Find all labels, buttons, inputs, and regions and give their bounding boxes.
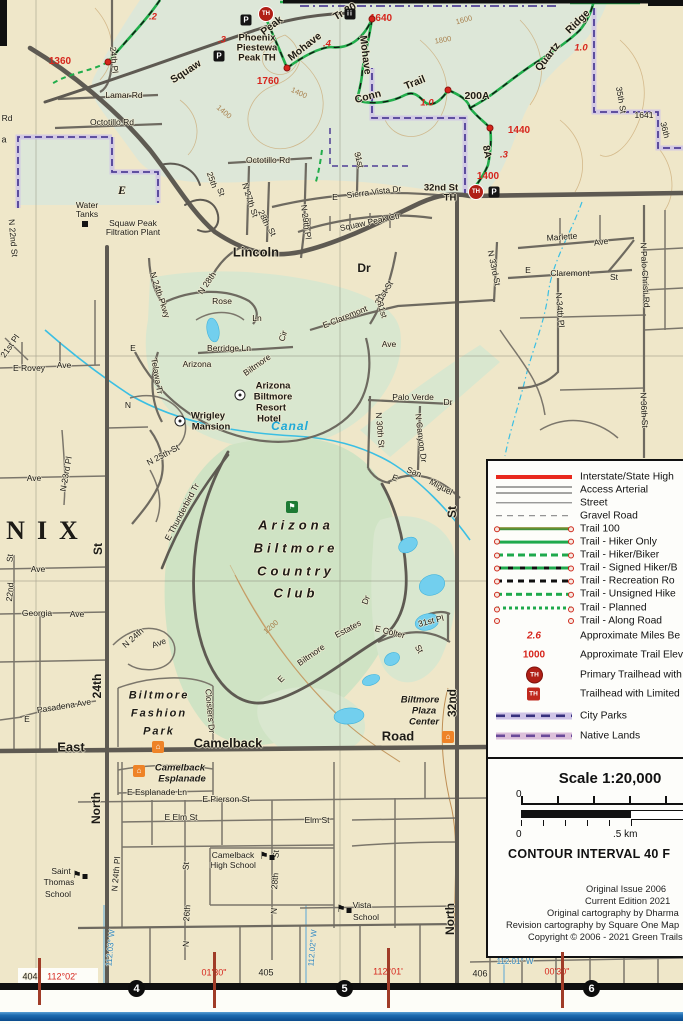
legend-item-label: Trail - Hiker Only — [580, 537, 657, 548]
scale-bar-mi — [521, 803, 683, 805]
map-label: a — [1, 136, 6, 145]
map-label: Biltmore — [254, 542, 339, 555]
trail100-line-sample — [496, 527, 572, 531]
map-label: Biltmore — [254, 392, 293, 402]
fashion-park-label: Biltmore — [129, 691, 190, 702]
map-label: Rd — [2, 114, 13, 123]
map-label: 1600 — [455, 14, 473, 26]
arterial-line-sample — [496, 486, 572, 493]
map-label: St — [413, 643, 424, 654]
legend-item-label: Street — [580, 497, 607, 508]
mansion-poi-icon — [175, 416, 186, 427]
map-label: N 22nd St — [7, 219, 19, 257]
scale-km-zero: 0 — [516, 829, 522, 840]
map-label: Ave — [70, 610, 85, 619]
legend-box: Interstate/State HighAccess ArterialStre… — [486, 459, 683, 759]
street-line-sample — [496, 502, 572, 503]
city-parks-sample — [496, 712, 572, 719]
legend-item-alongroad: Trail - Along Road — [488, 614, 683, 627]
map-label: Telawa Tr — [150, 357, 165, 394]
trail-marker-dot — [105, 59, 112, 66]
grid-tile-5: 5 — [336, 980, 353, 997]
map-label: E Colter — [374, 624, 406, 640]
map-label: Country — [257, 565, 335, 578]
map-label: N — [181, 941, 190, 948]
map-label: St — [610, 273, 618, 282]
map-label: 25th — [205, 171, 219, 189]
map-label: St — [446, 506, 458, 518]
map-label: San — [405, 465, 422, 479]
map-label: Ave — [382, 340, 397, 349]
scale-title: Scale 1:20,000 — [488, 770, 683, 787]
map-label: N Canyon Dr — [414, 413, 428, 463]
lincoln-dr-label: Lincoln — [233, 246, 279, 259]
map-label: Ave — [151, 637, 168, 650]
map-label: Dr — [357, 262, 370, 274]
restroom-icon: ii — [345, 9, 356, 20]
map-label: 1641 — [635, 111, 654, 120]
map-label: E — [276, 674, 286, 684]
map-label: Peak TH — [238, 53, 276, 63]
parking-icon: P — [241, 15, 252, 26]
water-tank-icon — [82, 221, 88, 227]
map-label: Squaw Peak Ctr — [339, 211, 401, 232]
map-label: North — [90, 792, 102, 824]
24th-st-label: 24th — [91, 674, 103, 699]
map-label: Center — [409, 717, 439, 727]
map-label: Cir — [277, 330, 288, 343]
map-label: Club — [274, 587, 319, 600]
map-label: Ave — [593, 237, 609, 247]
legend-item-hiker: Trail - Hiker Only — [488, 536, 683, 549]
legend-item-signed: Trail - Signed Hiker/B — [488, 562, 683, 575]
map-label: Octotillo Rd — [90, 118, 134, 127]
map-label: Camelback — [194, 737, 263, 750]
map-label: 1400 — [290, 86, 308, 100]
camelback-rd-label: East — [57, 741, 84, 754]
school-icon: ⚑ — [260, 852, 275, 862]
legend-item-planned: Trail - Planned — [488, 601, 683, 614]
map-label: 26th — [182, 904, 192, 921]
map-label: 1200 — [262, 619, 280, 635]
map-label: Esplanade — [158, 774, 206, 784]
credit-line: Original Issue 2006 — [586, 884, 666, 894]
school-icon: ⚑ — [73, 871, 88, 881]
map-label: N Palo Christi Rd — [639, 242, 651, 308]
scale-bar-km-outline — [631, 810, 683, 820]
grid-tile-4: 4 — [128, 980, 145, 997]
shopping-icon: ⌂ — [133, 765, 145, 777]
school-icon: ⚑ — [337, 905, 352, 915]
graticule-tick — [561, 952, 564, 1008]
map-label: N — [269, 908, 278, 915]
map-label: 112.01° W — [497, 958, 534, 966]
map-label: Park — [143, 727, 175, 738]
legend-th-primary-label: Primary Trailhead with — [580, 669, 682, 680]
map-label: Ln — [252, 314, 261, 323]
map-label: 406 — [472, 970, 487, 979]
map-label: Palo Verde — [392, 393, 434, 402]
map-label: E — [118, 184, 126, 196]
map-label: St — [5, 554, 14, 563]
canal-label: Canal — [271, 420, 309, 432]
trailhead-icon: TH — [258, 6, 274, 22]
trail-marker-dot — [284, 65, 291, 72]
parking-icon: P — [489, 187, 500, 198]
legend-item-label: Trail - Planned — [580, 602, 647, 613]
legend-item-street: Street — [488, 496, 683, 509]
legend-city-parks: City Parks — [488, 709, 683, 722]
map-label: .3 — [218, 35, 226, 45]
map-label: Tanks — [76, 210, 98, 219]
trail-8a-label: 8A — [480, 145, 492, 159]
map-label: School — [353, 913, 379, 922]
map-label: North — [444, 903, 456, 935]
map-label: N — [125, 401, 131, 410]
map-label: Elm St — [304, 816, 329, 825]
saint-thomas-school-label: Saint — [51, 867, 70, 876]
credit-line: Revision cartography by Square One Map — [506, 920, 679, 930]
map-label: Estates — [333, 619, 362, 640]
native-lands-sample — [496, 732, 572, 739]
map-label: Mohave — [357, 35, 372, 75]
elevation-1760: 1760 — [257, 77, 279, 87]
map-label: 1800 — [434, 35, 452, 45]
map-label: E — [391, 473, 399, 483]
legend-elevation-value: 1000 — [496, 649, 572, 660]
elevation-1360: 1360 — [49, 57, 71, 67]
map-label: E Claremont — [322, 304, 369, 330]
legend-city-parks-label: City Parks — [580, 710, 627, 721]
map-label: Ave — [27, 474, 42, 483]
legend-item-label: Trail - Hiker/Biker — [580, 550, 659, 561]
elevation-1400: 1400 — [477, 172, 499, 182]
map-label: Miguel — [428, 477, 454, 496]
map-label: Pasadena Ave — [36, 698, 91, 715]
camelback-high-school-label: Camelback — [212, 851, 255, 860]
map-label: Octotillo Rd — [246, 156, 290, 165]
grid-tile-6: 6 — [583, 980, 600, 997]
legend-th-limited-label: Trailhead with Limited — [580, 688, 680, 699]
shopping-icon: ⌂ — [152, 741, 164, 753]
camelback-esplanade-label: Camelback — [155, 763, 205, 773]
legend-item-label: Trail 100 — [580, 523, 620, 534]
map-label: Cloisters Dr — [204, 689, 216, 734]
map-label: N 36th St — [639, 392, 649, 428]
map-label: E — [332, 193, 338, 202]
trail-marker-dot — [487, 125, 494, 132]
map-label: 405 — [258, 969, 273, 978]
map-label: Fashion — [131, 709, 187, 720]
map-label: N 33rd St — [486, 250, 502, 287]
map-label: Ridge — [564, 8, 592, 36]
trailhead-icon: TH — [468, 184, 484, 200]
trail-marker-dot — [369, 16, 376, 23]
map-label: E — [24, 715, 30, 724]
map-label: N 28th — [196, 270, 217, 295]
legend-item-label: Trail - Unsigned Hike — [580, 589, 676, 600]
map-label: Lamar Rd — [105, 91, 142, 100]
map-label: 31st Pl — [417, 614, 444, 629]
credit-line: Current Edition 2021 — [585, 896, 670, 906]
map-label: Claremont — [550, 269, 589, 278]
map-label: Trail — [403, 74, 427, 92]
map-label: E Elm St — [164, 813, 197, 822]
map-label: N 29th Pl — [299, 204, 312, 240]
map-label: 21st Pl — [0, 333, 21, 359]
map-label: Resort — [256, 403, 286, 413]
golf-course-icon: ⚑ — [286, 501, 298, 513]
mohave-trail-label: Mohave — [286, 31, 323, 63]
map-label: N 24th Pkwy — [149, 271, 172, 319]
map-label: Biltmore — [242, 353, 272, 378]
recreation-line-sample — [496, 580, 572, 583]
map-label: Plaza — [412, 706, 436, 716]
legend-item-hwy: Interstate/State High — [488, 470, 683, 483]
parking-icon: P — [214, 51, 225, 62]
legend-item-label: Gravel Road — [580, 510, 638, 521]
vista-school-label: Vista — [353, 901, 372, 910]
map-label: N 34th Pl — [554, 292, 566, 328]
th-circle-icon: TH — [526, 666, 543, 683]
map-label: St — [92, 543, 104, 555]
scale-box: Scale 1:20,000 0 0 .5 km CONTOUR INTERVA… — [486, 757, 683, 958]
map-label: E — [525, 266, 531, 275]
scale-km-label: .5 km — [613, 829, 637, 840]
unsigned-line-sample — [496, 593, 572, 595]
map-label: .2 — [149, 12, 157, 22]
legend-item-label: Trail - Along Road — [580, 615, 662, 626]
map-label: N 24th Pl — [110, 856, 122, 892]
map-label: Ave — [31, 565, 46, 574]
map-label: 1400 — [215, 104, 233, 120]
map-label: St — [216, 187, 227, 197]
map-label: 22nd — [5, 582, 15, 602]
legend-native-lands-label: Native Lands — [580, 730, 640, 741]
map-label: E Rovey — [13, 364, 45, 373]
legend-item-label: Interstate/State High — [580, 471, 674, 482]
shopping-icon: ⌂ — [442, 731, 454, 743]
graticule-tick — [387, 948, 390, 1008]
hikerbiker-line-sample — [496, 554, 572, 557]
trail-marker-dot — [445, 87, 452, 94]
quartz-ridge-label: Quartz — [534, 41, 563, 74]
gravel-line-sample — [496, 515, 572, 517]
legend-item-arterial: Access Arterial — [488, 483, 683, 496]
biltmore-hotel-label: Arizona — [256, 381, 291, 391]
map-label: Rose — [212, 297, 232, 306]
wrigley-mansion-label: Wrigley — [191, 411, 225, 421]
map-label: Sierra Vista Dr — [346, 184, 402, 199]
map-label: 36th — [659, 121, 671, 139]
map-label: 31st — [353, 151, 365, 169]
map-label: E Thunderbird Tr — [163, 482, 200, 542]
map-label: 35th St — [614, 86, 627, 114]
legend-item-hikerbiker: Trail - Hiker/Biker — [488, 549, 683, 562]
legend-elevation-label: Approximate Trail Elev — [580, 649, 683, 660]
map-label: Dr — [444, 398, 453, 407]
map-label: 00'30" — [545, 968, 570, 977]
legend-elevation: 1000 Approximate Trail Elev — [488, 648, 683, 661]
map-label: N 24th — [121, 626, 145, 649]
map-label: Ave — [57, 361, 72, 370]
signed-line-sample — [496, 567, 572, 570]
legend-miles-label: Approximate Miles Be — [580, 630, 680, 641]
hiker-line-sample — [496, 541, 572, 544]
map-label: .3 — [500, 150, 508, 160]
legend-item-unsigned: Trail - Unsigned Hike — [488, 588, 683, 601]
map-label: E — [130, 344, 136, 353]
trail-map-page: .2.31360SquawPeakPhoenixPiestewaPeak TH1… — [0, 0, 683, 1024]
hwy-line-sample — [496, 475, 572, 479]
legend-item-label: Access Arterial — [580, 484, 648, 495]
phoenix-city-label: NIX — [6, 518, 90, 544]
map-label: N 23rd Pl — [59, 456, 74, 492]
country-club-label: Arizona — [258, 519, 334, 532]
map-label: 112°02' — [47, 973, 77, 982]
conn-trail-label: Conn — [354, 88, 383, 105]
elevation-1440: 1440 — [508, 126, 530, 136]
map-label: N 30th St — [374, 412, 386, 448]
map-label: High School — [210, 861, 256, 870]
map-label: 28th — [270, 872, 280, 889]
legend-item-label: Trail - Signed Hiker/B — [580, 563, 677, 574]
map-label: Mansion — [192, 422, 231, 432]
scale-bar-km-solid — [521, 810, 631, 818]
map-label: Road — [382, 730, 415, 743]
contour-interval-label: CONTOUR INTERVAL 40 F — [508, 847, 670, 861]
map-label: Dr — [360, 594, 371, 605]
map-label: 1.0 — [574, 43, 587, 53]
hotel-poi-icon — [235, 390, 246, 401]
map-label: N 25th St — [145, 443, 180, 467]
legend-item-gravel: Gravel Road — [488, 509, 683, 522]
legend-item-label: Trail - Recreation Ro — [580, 576, 675, 587]
legend-th-limited: TH Trailhead with Limited — [488, 685, 683, 702]
map-label: St — [266, 227, 277, 238]
map-label: E Esplanade Ln — [127, 788, 187, 797]
alongroad-line-sample — [496, 616, 572, 626]
legend-th-primary: TH Primary Trailhead with — [488, 666, 683, 683]
graticule-tick — [38, 958, 41, 1005]
legend-item-recreation: Trail - Recreation Ro — [488, 575, 683, 588]
map-label: Berridge Ln — [207, 344, 251, 353]
credit-line: Original cartography by Dharma — [547, 908, 679, 918]
legend-native-lands: Native Lands — [488, 729, 683, 742]
cover-blue-strip — [0, 1012, 683, 1021]
map-label: 28th — [257, 209, 272, 228]
planned-line-sample — [496, 606, 572, 609]
map-label: 112.03° W — [105, 929, 116, 966]
squaw-peak-road-label: Squaw — [169, 58, 203, 85]
map-label: Georgia — [22, 609, 52, 618]
biltmore-plaza-label: Biltmore — [401, 695, 440, 705]
trail-200a-label: 200A — [464, 91, 489, 102]
map-label: School — [45, 890, 71, 899]
credit-line: Copyright © 2006 - 2021 Green Trails — [528, 932, 683, 942]
map-label: E Pierson St — [202, 795, 249, 804]
map-label: .4 — [323, 39, 331, 49]
map-label: St — [181, 862, 190, 871]
map-label: 404 — [22, 973, 37, 982]
32nd-st-label: 32nd — [446, 689, 458, 717]
map-label: Marlette — [546, 232, 577, 243]
map-label: TH — [444, 193, 457, 203]
map-label: 1.0 — [420, 98, 433, 108]
map-label: Biltmore — [296, 643, 326, 668]
graticule-tick — [213, 952, 216, 1008]
map-label: Thomas — [44, 878, 75, 887]
legend-miles-value: 2.6 — [496, 630, 572, 641]
th-square-icon: TH — [527, 687, 540, 700]
map-label: Filtration Plant — [106, 228, 160, 237]
map-label: Arizona — [183, 360, 212, 369]
legend-miles: 2.6 Approximate Miles Be — [488, 629, 683, 642]
legend-item-trail100: Trail 100 — [488, 522, 683, 535]
map-label: 112.02° W — [307, 929, 318, 966]
